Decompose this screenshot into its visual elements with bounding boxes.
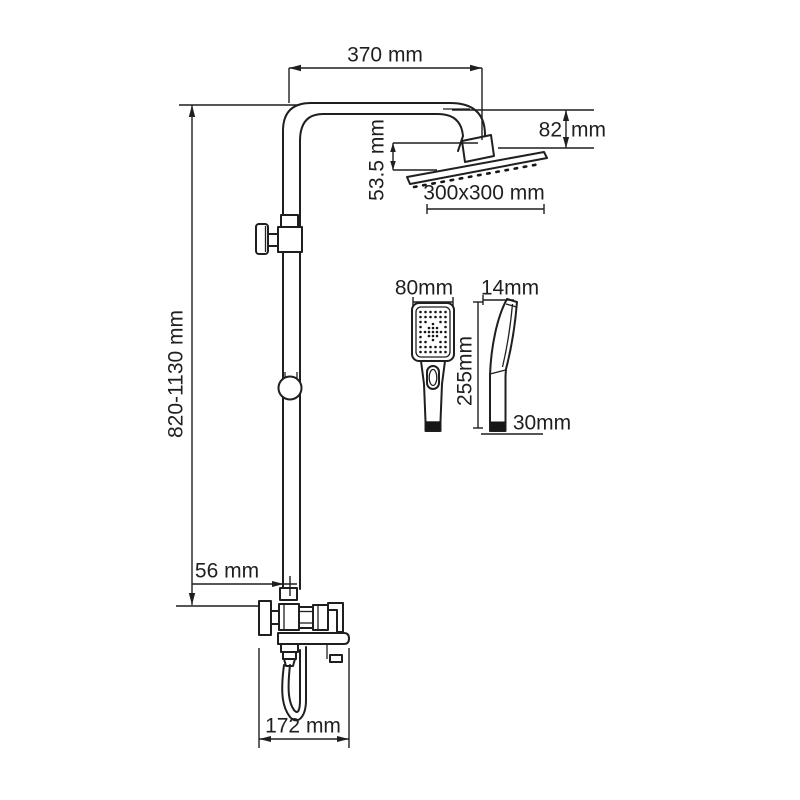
shower-system-diagram: [0, 0, 800, 800]
dim-column-height: [176, 105, 300, 606]
slider-bracket: [256, 215, 302, 254]
dim-head-size: [427, 204, 544, 214]
dim-label-handshower-width: 80mm: [395, 278, 453, 299]
ball-joint: [279, 372, 302, 400]
dim-label-handshower-length: 255mm: [455, 336, 476, 406]
hand-shower-front-view: [412, 303, 454, 431]
dim-label-head-drop-unit: mm: [571, 120, 606, 141]
dim-label-column-height: 820-1130 mm: [166, 310, 187, 438]
dim-label-head-offset: 53.5 mm: [367, 119, 388, 201]
dim-label-head-drop-value: 82: [539, 120, 562, 141]
bath-spout: [278, 633, 349, 644]
technical-drawing-canvas: 370 mm 820-1130 mm 82 mm 53.5 mm 300x300…: [0, 0, 800, 800]
dim-label-arm-reach: 370 mm: [347, 45, 423, 66]
dim-label-spout-depth: 172 mm: [265, 716, 341, 737]
dim-label-wall-to-pipe: 56 mm: [195, 561, 259, 582]
dim-label-head-size: 300x300 mm: [423, 183, 544, 204]
dim-label-handshower-bottom: 30mm: [513, 413, 571, 434]
handle-grip-band: [426, 421, 440, 430]
mixer-faucet: [259, 588, 349, 666]
mixer-handle: [328, 603, 343, 632]
handle-grip-band-side: [491, 422, 505, 431]
dim-label-handshower-thickness: 14mm: [481, 278, 539, 299]
